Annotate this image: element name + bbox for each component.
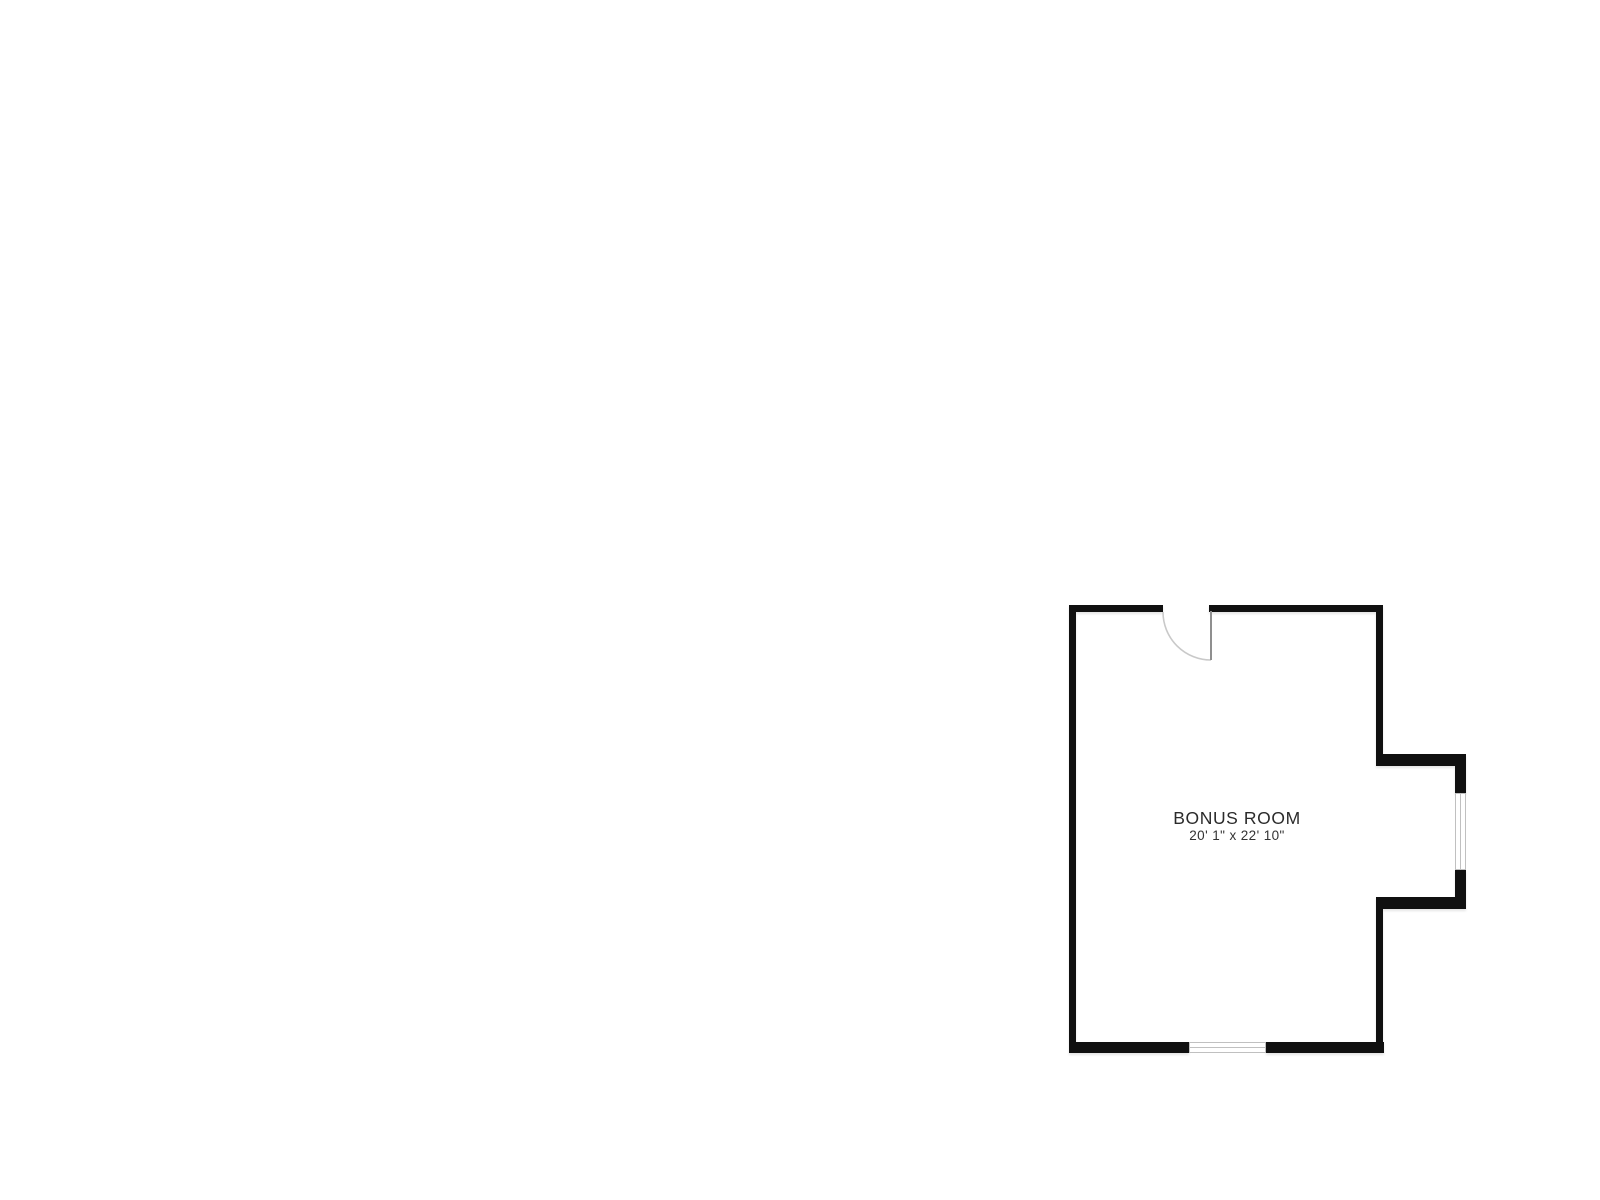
wall-right-lower — [1376, 897, 1383, 1053]
room-name: BONUS ROOM — [1137, 809, 1337, 828]
wall-top-left-segment — [1069, 605, 1163, 612]
door — [1163, 611, 1211, 660]
wall-bottom-right-segment — [1266, 1042, 1384, 1053]
wall-left — [1069, 605, 1076, 1053]
wall-bumpout-right-upper — [1455, 754, 1466, 793]
wall-right-upper — [1376, 605, 1383, 765]
door-swing-arc — [1163, 612, 1211, 660]
room-label: BONUS ROOM 20' 1" x 22' 10" — [1137, 809, 1337, 843]
wall-bumpout-top — [1376, 754, 1466, 766]
wall-bumpout-bottom — [1376, 897, 1466, 909]
wall-top-right-segment — [1209, 605, 1383, 612]
floor-plan-page: BONUS ROOM 20' 1" x 22' 10" — [0, 0, 1600, 1200]
wall-bottom-left-segment — [1069, 1042, 1189, 1053]
floor-plan-drawing — [0, 0, 1600, 1200]
room-dimensions: 20' 1" x 22' 10" — [1137, 828, 1337, 843]
